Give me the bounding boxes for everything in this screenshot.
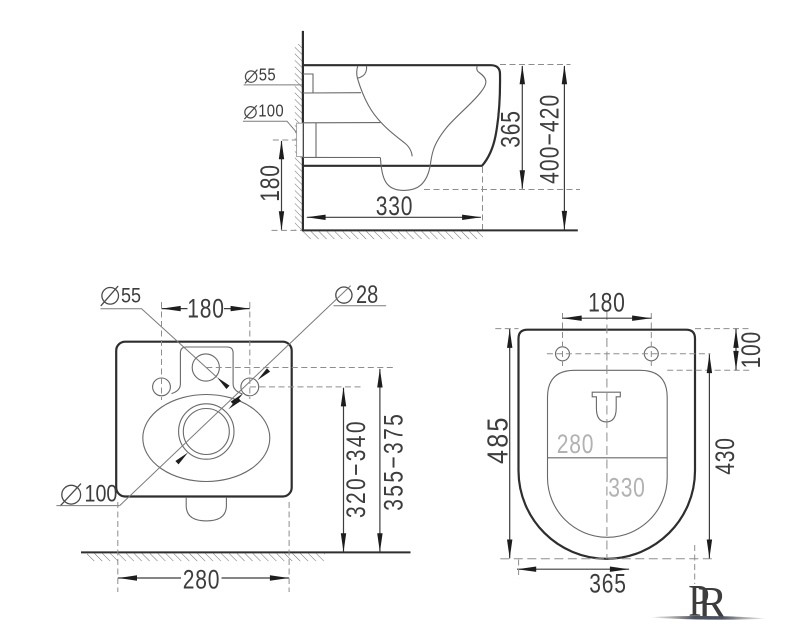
svg-text:330: 330 [608, 473, 645, 503]
svg-text:180: 180 [588, 288, 625, 318]
svg-text:R: R [698, 576, 728, 628]
svg-text:55: 55 [259, 66, 276, 85]
svg-text:280: 280 [183, 565, 220, 595]
svg-text:330: 330 [376, 191, 413, 221]
svg-text:320−340: 320−340 [342, 419, 372, 518]
svg-text:365: 365 [496, 110, 526, 147]
svg-text:55: 55 [121, 284, 141, 308]
svg-text:365: 365 [589, 569, 626, 599]
svg-text:355−375: 355−375 [379, 412, 409, 511]
svg-text:485: 485 [481, 415, 514, 464]
svg-text:400−420: 400−420 [535, 94, 565, 184]
svg-text:100: 100 [737, 331, 767, 368]
svg-text:180: 180 [255, 164, 285, 201]
svg-text:100: 100 [258, 102, 284, 121]
svg-text:180: 180 [187, 294, 224, 324]
svg-text:280: 280 [557, 429, 594, 459]
svg-text:28: 28 [356, 281, 378, 309]
svg-text:430: 430 [710, 437, 740, 474]
svg-text:100: 100 [85, 480, 118, 507]
